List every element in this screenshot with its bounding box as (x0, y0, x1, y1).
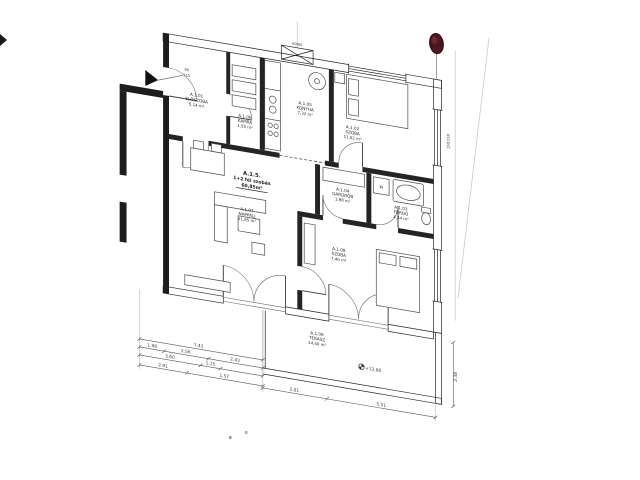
scan-speck (229, 436, 232, 439)
door-bedroom (339, 139, 363, 167)
apartment-header: A.1.5. 1+2 fél szobás 60,85m² (233, 169, 271, 193)
scan-edge-mark (0, 34, 7, 46)
level-mark: +12,80 (359, 363, 382, 374)
party-wall-left (163, 95, 169, 294)
chair-icon (211, 143, 221, 153)
door-halfroom (302, 267, 326, 295)
entry-door-width: 90 (185, 68, 190, 73)
kitchen-opening-line (280, 155, 325, 163)
bed-icon (376, 249, 419, 312)
stamp-mark (430, 32, 444, 80)
exterior-wall-bottom (285, 307, 328, 321)
neighbour-walls (120, 84, 163, 249)
room-label-nappali: A.1.07 NAPPALI 21,65 m² (238, 206, 256, 224)
level-value: +12,80 (365, 365, 381, 374)
exterior-wall-bottom (388, 324, 433, 339)
floor-plan-scan: 150/150 (0, 0, 640, 480)
dim-row-3: 3.60 1.15 (137, 349, 264, 379)
furniture: M (185, 47, 431, 327)
room-label-szoba8: A.1.08 SZOBA 7,40 m² (331, 246, 347, 264)
wardrobe-icon (304, 223, 315, 265)
dim-col-right: 2.38 (451, 340, 459, 409)
gardrob-shelf (323, 167, 364, 187)
window-right-1: 150/150 (433, 109, 451, 168)
room-label-szoba2: A.1.02 SZOBA 11,52 m² (344, 124, 362, 142)
party-wall-left (163, 33, 169, 68)
boiler-icon (315, 78, 320, 84)
washing-machine-label: M (380, 184, 384, 190)
plan-group: 150/150 (120, 0, 460, 425)
room-label-gardrob: A.1.04 GARDRÓB 1,98 m² (332, 186, 353, 205)
room-label-terasz: A.1.09 TERASZ 14,40 m² (308, 330, 326, 348)
scan-speck (245, 431, 248, 434)
room-label-kamra: A.1.06 KAMRA 1,50 m² (237, 113, 253, 131)
dim-row-4: 2.91 1.57 (137, 359, 264, 389)
scan-faint-line (458, 38, 489, 298)
room-label-furdo: A.1.03 FÜRDŐ 4,34 m² (393, 204, 409, 222)
terrace-door-living (223, 265, 285, 312)
bathtub-icon (393, 179, 424, 206)
toilet-icon (422, 212, 431, 226)
room-label-konyha: A.1.05 KONYHA 7,32 m² (297, 100, 314, 118)
svg-text:2.38: 2.38 (453, 371, 459, 382)
armchair-icon (252, 242, 265, 255)
sofa-icon (214, 192, 265, 256)
pantry-shelves (232, 65, 256, 110)
dining-set (191, 140, 225, 176)
dim-row-terrace: 2.01 5.51 (261, 382, 438, 420)
window-right-2 (433, 249, 443, 303)
entry-arrow-icon (145, 70, 158, 88)
chair-icon (194, 140, 204, 150)
kitchen-counter (265, 60, 326, 158)
room-label-eloszoba: A.1.01 ELŐSZOBA 5,14 m² (185, 91, 208, 110)
terrace-parapet-right (435, 332, 441, 404)
terrace-parapet-bottom (263, 368, 442, 404)
window-size-label: 150/150 (446, 133, 450, 149)
boiler-icon (309, 71, 326, 91)
